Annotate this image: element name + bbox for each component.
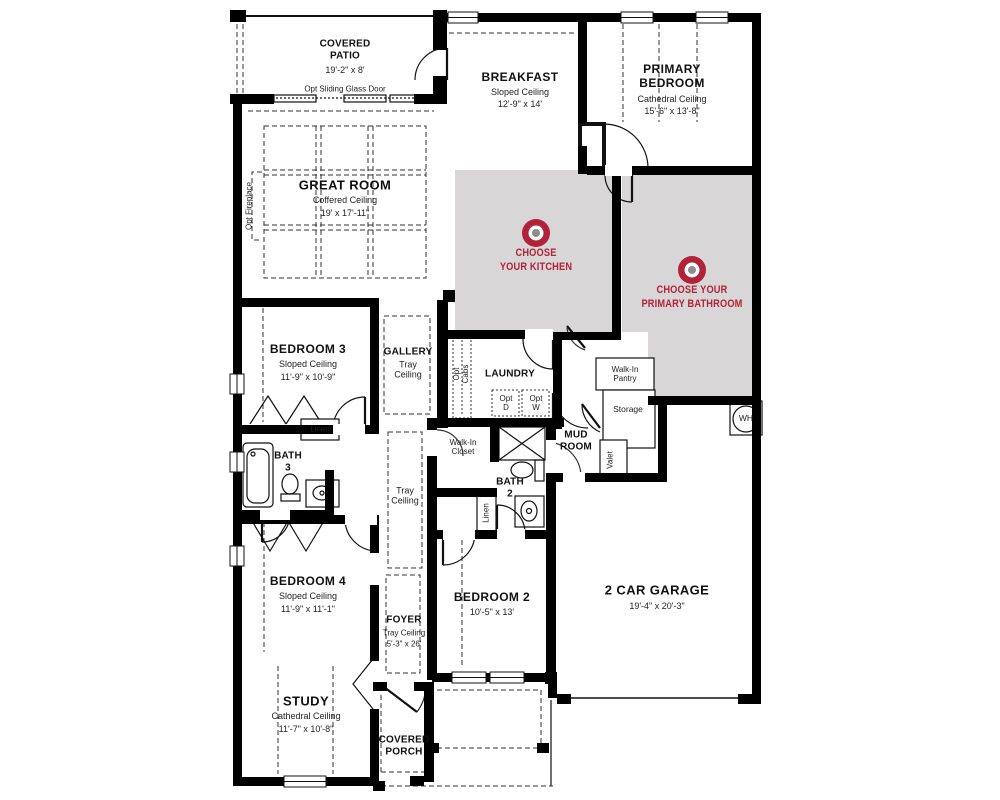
floorplan-page: COVERED PATIO 19'-2" x 8' Opt Sliding Gl… (0, 0, 1000, 800)
choose-primary-bathroom-hotspot[interactable]: CHOOSE YOUR PRIMARY BATHROOM (641, 284, 742, 312)
room-dims-great-room: 19' x 17'-11" (321, 208, 370, 218)
room-label-gallery: GALLERY (384, 346, 433, 358)
room-label-foyer: FOYER (386, 614, 421, 626)
room-label-breakfast: BREAKFAST (482, 71, 559, 85)
room-label-study: STUDY (283, 695, 329, 710)
room-dims-covered-patio: 19'-2" x 8' (325, 65, 364, 75)
room-ceiling-foyer: Tray Ceiling (383, 628, 425, 637)
opt-fireplace-label: Opt Fireplace (244, 182, 253, 230)
walk-in-pantry-label: Walk-In Pantry (612, 365, 639, 383)
room-label-laundry: LAUNDRY (485, 368, 535, 380)
room-ceiling-primary-bedroom: Cathedral Ceiling (637, 94, 706, 104)
room-label-garage: 2 CAR GARAGE (605, 584, 709, 599)
room-label-bedroom-2: BEDROOM 2 (454, 591, 530, 605)
room-label-mud-room: MUD ROOM (560, 430, 592, 453)
room-dims-bedroom-2: 10'-5" x 13' (470, 607, 514, 617)
opt-dryer-label: Opt D (500, 394, 513, 412)
choose-kitchen-target-icon[interactable] (522, 219, 550, 247)
choose-kitchen-hotspot[interactable]: CHOOSE YOUR KITCHEN (500, 247, 572, 275)
linen-bath2-label: Linen (481, 503, 490, 523)
walk-in-closet-label: Walk-In Closet (450, 438, 477, 456)
linen-bath3-label: Linen (310, 424, 330, 433)
room-label-covered-patio: COVERED PATIO (320, 39, 371, 62)
room-ceiling-bedroom-3: Sloped Ceiling (279, 359, 337, 369)
storage-label: Storage (613, 405, 643, 415)
room-label-bedroom-4: BEDROOM 4 (270, 575, 346, 589)
room-label-great-room: GREAT ROOM (299, 179, 392, 194)
room-label-bedroom-3: BEDROOM 3 (270, 343, 346, 357)
room-dims-breakfast: 12'-9" x 14' (498, 99, 542, 109)
hall-tray-ceiling-label: Tray Ceiling (391, 486, 419, 507)
room-label-bath-3: BATH 3 (274, 451, 302, 474)
room-ceiling-study: Cathedral Ceiling (271, 711, 340, 721)
opt-cabs-label: Opt Cabs (452, 365, 470, 384)
water-heater-label: WH (739, 414, 753, 424)
valet-label: Valet (605, 451, 614, 469)
room-dims-primary-bedroom: 15'-6" x 13'-8" (644, 106, 699, 116)
room-dims-bedroom-3: 11'-9" x 10'-9" (281, 372, 336, 382)
opt-washer-label: Opt W (530, 394, 543, 412)
room-label-bath-2: BATH 2 (496, 477, 524, 500)
choose-primary-bathroom-target-icon[interactable] (678, 256, 706, 284)
room-ceiling-gallery: Tray Ceiling (394, 360, 422, 381)
opt-sliding-door-label: Opt Sliding Glass Door (304, 84, 385, 93)
room-dims-foyer: 5'-3" x 26' (387, 639, 422, 648)
room-dims-garage: 19'-4" x 20'-3" (629, 601, 684, 611)
room-ceiling-breakfast: Sloped Ceiling (491, 87, 549, 97)
room-label-covered-porch: COVERED PORCH (379, 735, 430, 758)
room-label-primary-bedroom: PRIMARY BEDROOM (639, 63, 704, 91)
room-ceiling-great-room: Coffered Ceiling (313, 195, 377, 205)
room-dims-study: 11'-7" x 10'-8" (279, 724, 334, 734)
room-dims-bedroom-4: 11'-9" x 11'-1" (281, 604, 335, 614)
room-ceiling-bedroom-4: Sloped Ceiling (279, 591, 337, 601)
